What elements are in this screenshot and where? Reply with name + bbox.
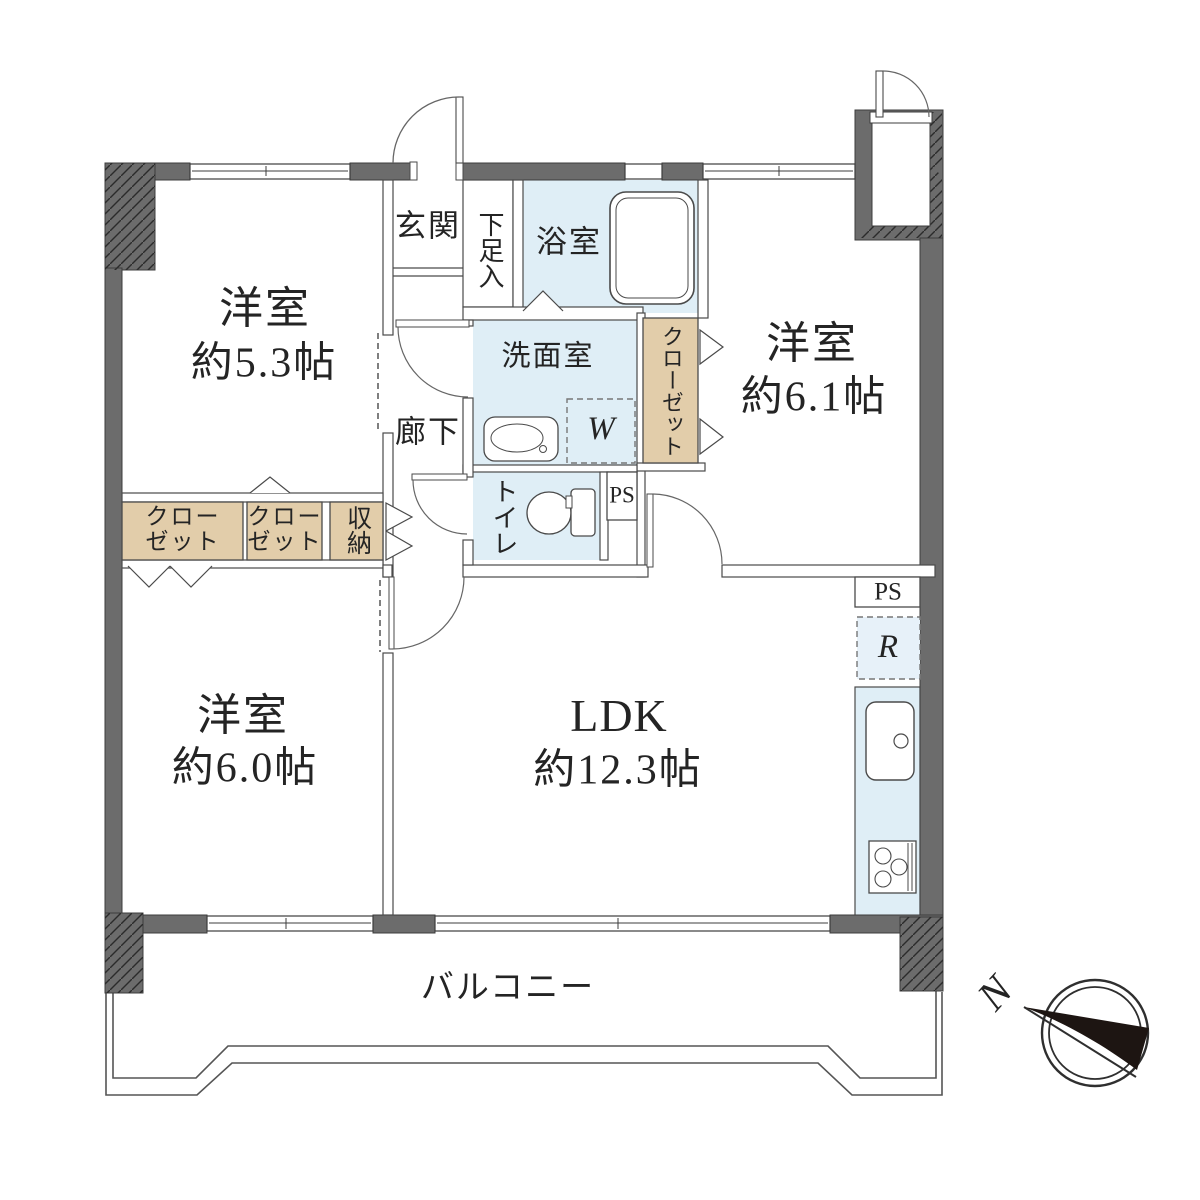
- washroom-door-leaf: [396, 320, 469, 327]
- label-washer: W: [587, 412, 615, 448]
- entrance-door-leaf: [456, 97, 463, 163]
- toilet-door-leaf: [412, 474, 467, 480]
- label-west-room-5-3: 洋室: [219, 285, 311, 333]
- washbasin: [484, 417, 558, 461]
- label-west-room-6-0: 洋室: [197, 692, 289, 740]
- toilet-door-swing: [413, 480, 467, 534]
- window-bathroom: [625, 164, 662, 179]
- closet-mid-door-mark: [250, 477, 290, 493]
- washroom-door-swing: [398, 327, 468, 397]
- neighbor-door-leaf: [876, 71, 883, 117]
- west-room-6-1-door-leaf: [647, 494, 653, 567]
- label-closet-left: クロー ゼット: [146, 505, 221, 555]
- kitchen-faucet: [894, 734, 908, 748]
- label-closet-vertical: クローゼット: [659, 325, 683, 457]
- room-fills: [473, 180, 920, 917]
- label-west-room-6-1: 洋室: [766, 320, 858, 368]
- floor-plan: 洋室 約5.3帖 洋室 約6.1帖 洋室 約6.0帖 LDK 約12.3帖 玄関…: [0, 0, 1200, 1200]
- label-closet-mid: クロー ゼット: [248, 505, 323, 555]
- label-balcony: バルコニー: [421, 971, 595, 1007]
- label-fridge: R: [878, 630, 898, 666]
- toilet-bowl: [527, 492, 571, 534]
- stove: [869, 841, 916, 893]
- wall-left: [105, 268, 122, 915]
- compass: [1024, 980, 1149, 1086]
- bathtub: [610, 192, 694, 304]
- label-entrance: 玄関: [395, 209, 461, 242]
- label-ldk-size: 約12.3帖: [533, 748, 703, 793]
- label-ps-toilet: PS: [609, 484, 635, 509]
- label-hallway: 廊下: [395, 415, 461, 448]
- entrance-step: [393, 268, 463, 276]
- label-ldk: LDK: [570, 691, 668, 741]
- closet-left-door-marks: [128, 566, 212, 587]
- label-washroom: 洗面室: [501, 341, 594, 372]
- label-west-room-5-3-size: 約5.3帖: [191, 341, 338, 386]
- label-toilet: トイレ: [489, 478, 517, 556]
- toilet-tank: [571, 489, 595, 536]
- label-west-room-6-0-size: 約6.0帖: [172, 746, 319, 791]
- west-room-6-1-door-swing: [653, 494, 722, 564]
- closet-vertical-door-marks: [700, 330, 723, 454]
- label-shuno: 収納: [344, 505, 371, 555]
- entrance-door-swing: [393, 97, 459, 163]
- ldk-door-leaf: [389, 577, 394, 649]
- ldk-door-swing: [392, 577, 464, 649]
- floor-plan-drawing: [0, 0, 1200, 1200]
- label-bathroom: 浴室: [536, 225, 602, 258]
- label-west-room-6-1-size: 約6.1帖: [741, 375, 888, 420]
- neighbor-door-alcove: [872, 122, 930, 226]
- label-ps-kitchen: PS: [874, 579, 902, 606]
- label-shoe-cabinet: 下足入: [475, 211, 503, 289]
